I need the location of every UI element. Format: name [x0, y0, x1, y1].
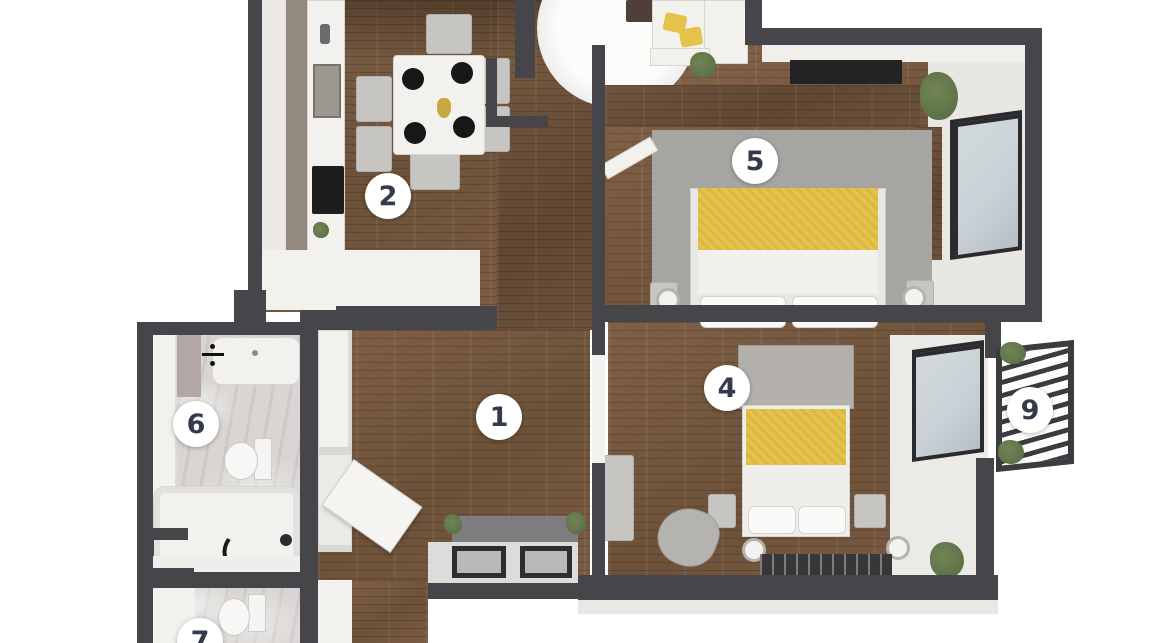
wall-bedroom5-top [745, 28, 1042, 45]
corridor-floor [497, 95, 597, 330]
kitchen-plant [313, 222, 329, 238]
balcony-plant [998, 440, 1024, 464]
wall-outer-left [137, 322, 153, 562]
wall-stub-kitchen-corridor [486, 58, 497, 120]
hall-wardrobe-lower [318, 580, 352, 643]
balcony-plant [1000, 342, 1026, 364]
wall-kitchen-south [318, 310, 497, 330]
wall-outer-left-lower [137, 560, 153, 643]
dinner-plate [402, 68, 424, 90]
wall-kitchen-left [248, 0, 262, 295]
wall-bath-top [137, 322, 300, 335]
room-badge-1: 1 [476, 394, 522, 440]
bedroom5-console [605, 85, 920, 127]
bed4-nightstand [854, 494, 886, 528]
sink-drain [252, 350, 258, 356]
bedroom5-tv [790, 60, 902, 84]
wc-toilet-tank [248, 594, 266, 632]
wc-toilet-bowl [218, 598, 250, 636]
hall-plant [566, 512, 586, 534]
bedroom4-door-leaf [592, 355, 605, 463]
bathroom-divider [177, 335, 201, 397]
shower-head [280, 534, 292, 546]
room-badge-9: 9 [1007, 387, 1053, 433]
room-badge-2: 2 [365, 173, 411, 219]
hall-plant [444, 514, 462, 534]
dinner-plate [451, 62, 473, 84]
bed4-headboard [738, 345, 854, 409]
bathroom-sink-counter [212, 337, 300, 385]
coffee-table [626, 0, 654, 22]
floor-slab-edge [578, 600, 998, 614]
wall-left-step [140, 528, 154, 562]
toilet-bowl [224, 442, 258, 480]
kitchen-faucet [320, 24, 330, 44]
bedroom5-plant [920, 72, 958, 120]
wall-bottom [578, 575, 998, 600]
dining-chair [356, 76, 392, 122]
wall-between-5-4 [592, 305, 1042, 322]
room-badge-5: 5 [732, 138, 778, 184]
picture-frame [452, 546, 506, 578]
bed4-yellow-blanket [746, 409, 846, 465]
wall-bedroom4-right-lower [976, 458, 994, 578]
table-centerpiece [437, 98, 451, 118]
room-badge-4: 4 [704, 365, 750, 411]
room-badge-6: 6 [173, 401, 219, 447]
dining-chair [426, 14, 472, 54]
kitchen-counter-side [286, 0, 307, 250]
dinner-plate [453, 116, 475, 138]
dinner-plate [404, 122, 426, 144]
kitchen-south-cabinet [262, 250, 480, 310]
faucet-icon [210, 344, 215, 349]
wall-hall-bath [300, 310, 318, 643]
dining-chair [410, 152, 460, 190]
hall-shelf [452, 516, 578, 542]
hall-wardrobe [318, 330, 352, 448]
bed5-yellow-blanket [698, 188, 878, 250]
kitchen-wall-face [262, 0, 286, 252]
bed4-pillow [748, 506, 796, 534]
faucet-icon [210, 361, 215, 366]
dining-chair [356, 126, 392, 172]
kitchen-cooktop [312, 166, 344, 214]
picture-frame [520, 546, 572, 578]
living-plant [690, 52, 716, 78]
bedroom5-window [950, 110, 1022, 260]
wall-kitchen-left-step [234, 290, 266, 322]
sofa-pillow-yellow [679, 26, 704, 48]
bedroom4-dresser [600, 455, 634, 541]
wall-living-divider [515, 0, 535, 78]
bedroom4-plant [930, 542, 964, 578]
bed4-pillow [798, 506, 846, 534]
bedroom4-window [912, 340, 984, 462]
hallway-floor-lower [350, 580, 428, 643]
bed5-sheet [698, 250, 878, 294]
wall-corridor-header [486, 116, 548, 127]
kitchen-sink [313, 64, 341, 118]
wall-outer-right [1025, 28, 1042, 312]
faucet-icon [202, 353, 224, 356]
hall-platform-rim [428, 583, 588, 599]
floor-plan-canvas: 1 2 4 5 6 7 9 [0, 0, 1150, 643]
